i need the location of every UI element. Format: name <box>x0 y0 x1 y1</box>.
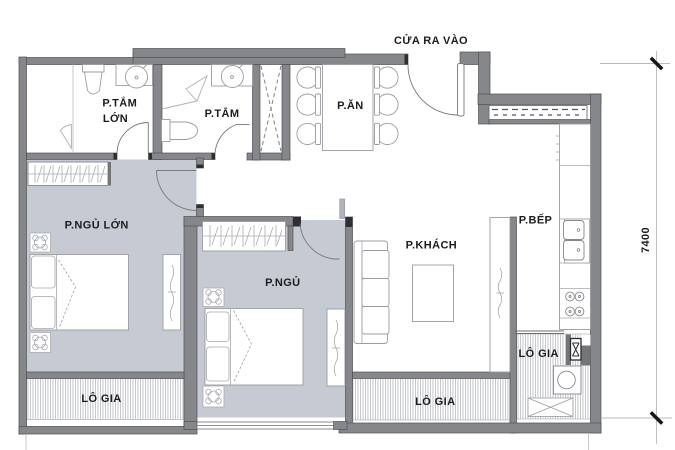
svg-text:LỚN: LỚN <box>103 112 128 125</box>
svg-text:7400: 7400 <box>640 227 652 253</box>
svg-text:P.NGỦ: P.NGỦ <box>265 276 300 289</box>
svg-text:P.TẮM: P.TẮM <box>102 97 137 110</box>
svg-text:LÔ GIA: LÔ GIA <box>81 392 121 405</box>
svg-text:P.KHÁCH: P.KHÁCH <box>406 239 458 252</box>
svg-text:P.TẮM: P.TẮM <box>205 107 240 120</box>
svg-text:LÔ GIA: LÔ GIA <box>415 395 455 408</box>
svg-text:P.BẾP: P.BẾP <box>519 214 553 227</box>
svg-text:P.ĂN: P.ĂN <box>337 99 363 112</box>
svg-text:P.NGỦ LỚN: P.NGỦ LỚN <box>65 219 129 232</box>
svg-text:CỬA RA VÀO: CỬA RA VÀO <box>394 34 468 47</box>
svg-text:LÔ GIA: LÔ GIA <box>519 347 559 360</box>
